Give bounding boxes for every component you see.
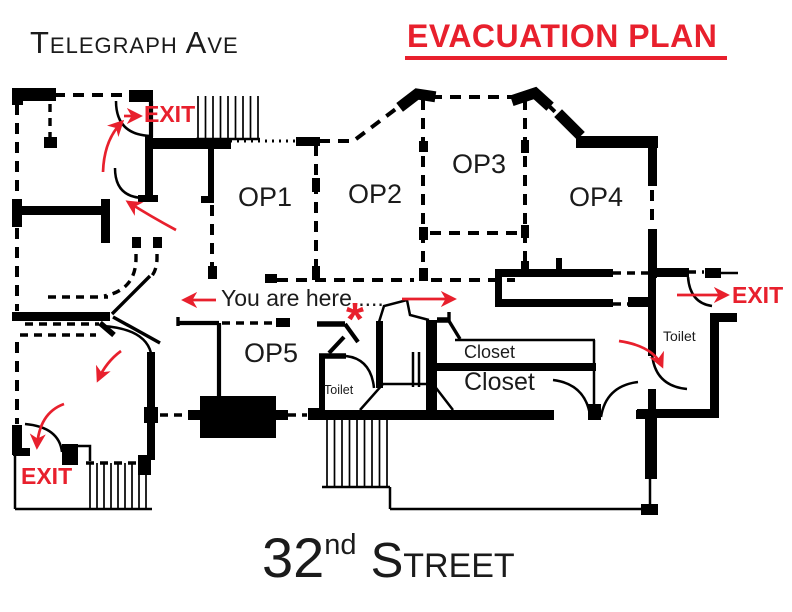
floor-plan: [0, 0, 792, 612]
arrow-curve-to-bottom-left-exit: [37, 404, 64, 447]
stairs-bottom-left: [90, 463, 146, 508]
arrow-down-to-bottom-left: [98, 351, 121, 380]
street-name-bottom: 32 nd Street: [262, 530, 515, 586]
street-word: Street: [371, 537, 515, 586]
room-label-op4: OP4: [569, 184, 623, 211]
exit-label-bottom-left: EXIT: [21, 465, 72, 488]
toilet-label-center: Toilet: [324, 384, 353, 397]
closet-label-upper: Closet: [464, 343, 515, 361]
evacuation-plan-page: Telegraph Ave EVACUATION PLAN 32 nd Stre…: [0, 0, 792, 612]
closet-label-lower: Closet: [464, 370, 535, 395]
toilet-label-right: Toilet: [663, 329, 696, 343]
room-label-op5: OP5: [244, 340, 298, 367]
room-label-op3: OP3: [452, 151, 506, 178]
arrow-curve-left-corridor: [128, 202, 176, 230]
room-label-op2: OP2: [348, 181, 402, 208]
arrow-curve-to-top-left-exit: [103, 122, 122, 172]
page-title: EVACUATION PLAN: [405, 20, 727, 60]
exit-label-top-left: EXIT: [144, 103, 195, 126]
stairs-bottom-center: [327, 420, 387, 486]
street-ordinal-suffix: nd: [324, 531, 356, 560]
street-name-top: Telegraph Ave: [30, 27, 239, 58]
street-number: 32: [262, 530, 324, 586]
room-label-op1: OP1: [238, 184, 292, 211]
exit-label-right: EXIT: [732, 284, 783, 307]
current-location-marker: *: [346, 296, 364, 342]
stairs-top-left: [198, 96, 258, 139]
